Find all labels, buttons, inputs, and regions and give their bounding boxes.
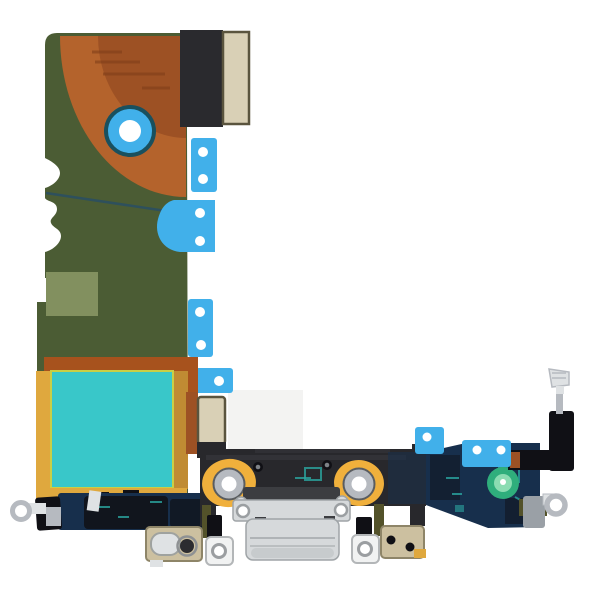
board-connector bbox=[180, 30, 249, 127]
sage-component bbox=[46, 272, 98, 316]
adhesive-tab-2 bbox=[157, 200, 215, 252]
right-bracket bbox=[381, 526, 426, 558]
product-photo: Product photo of a phone charging-port d… bbox=[0, 0, 600, 600]
adhesive-tab-6 bbox=[462, 440, 511, 467]
adhesive-tab-1 bbox=[191, 138, 217, 192]
adhesive-tab-3 bbox=[188, 299, 213, 357]
screw-tab-left bbox=[206, 537, 233, 565]
emi-shield-foil bbox=[51, 371, 173, 488]
audio-bracket bbox=[146, 527, 202, 567]
flex-cable-illustration bbox=[0, 0, 600, 600]
navy-flex bbox=[35, 490, 216, 531]
screw-tab-right bbox=[352, 535, 379, 563]
mid-connector bbox=[186, 392, 226, 458]
bracket-screw-left bbox=[253, 462, 263, 472]
emi-shield bbox=[36, 357, 198, 506]
soft-shadow bbox=[228, 390, 303, 452]
bracket-screw-right bbox=[322, 460, 332, 470]
lightning-connector bbox=[233, 487, 350, 560]
ground-pad bbox=[487, 467, 519, 499]
alignment-hole bbox=[106, 107, 154, 155]
adhesive-tab-5 bbox=[415, 427, 444, 454]
connector-contact-pad bbox=[223, 32, 249, 124]
